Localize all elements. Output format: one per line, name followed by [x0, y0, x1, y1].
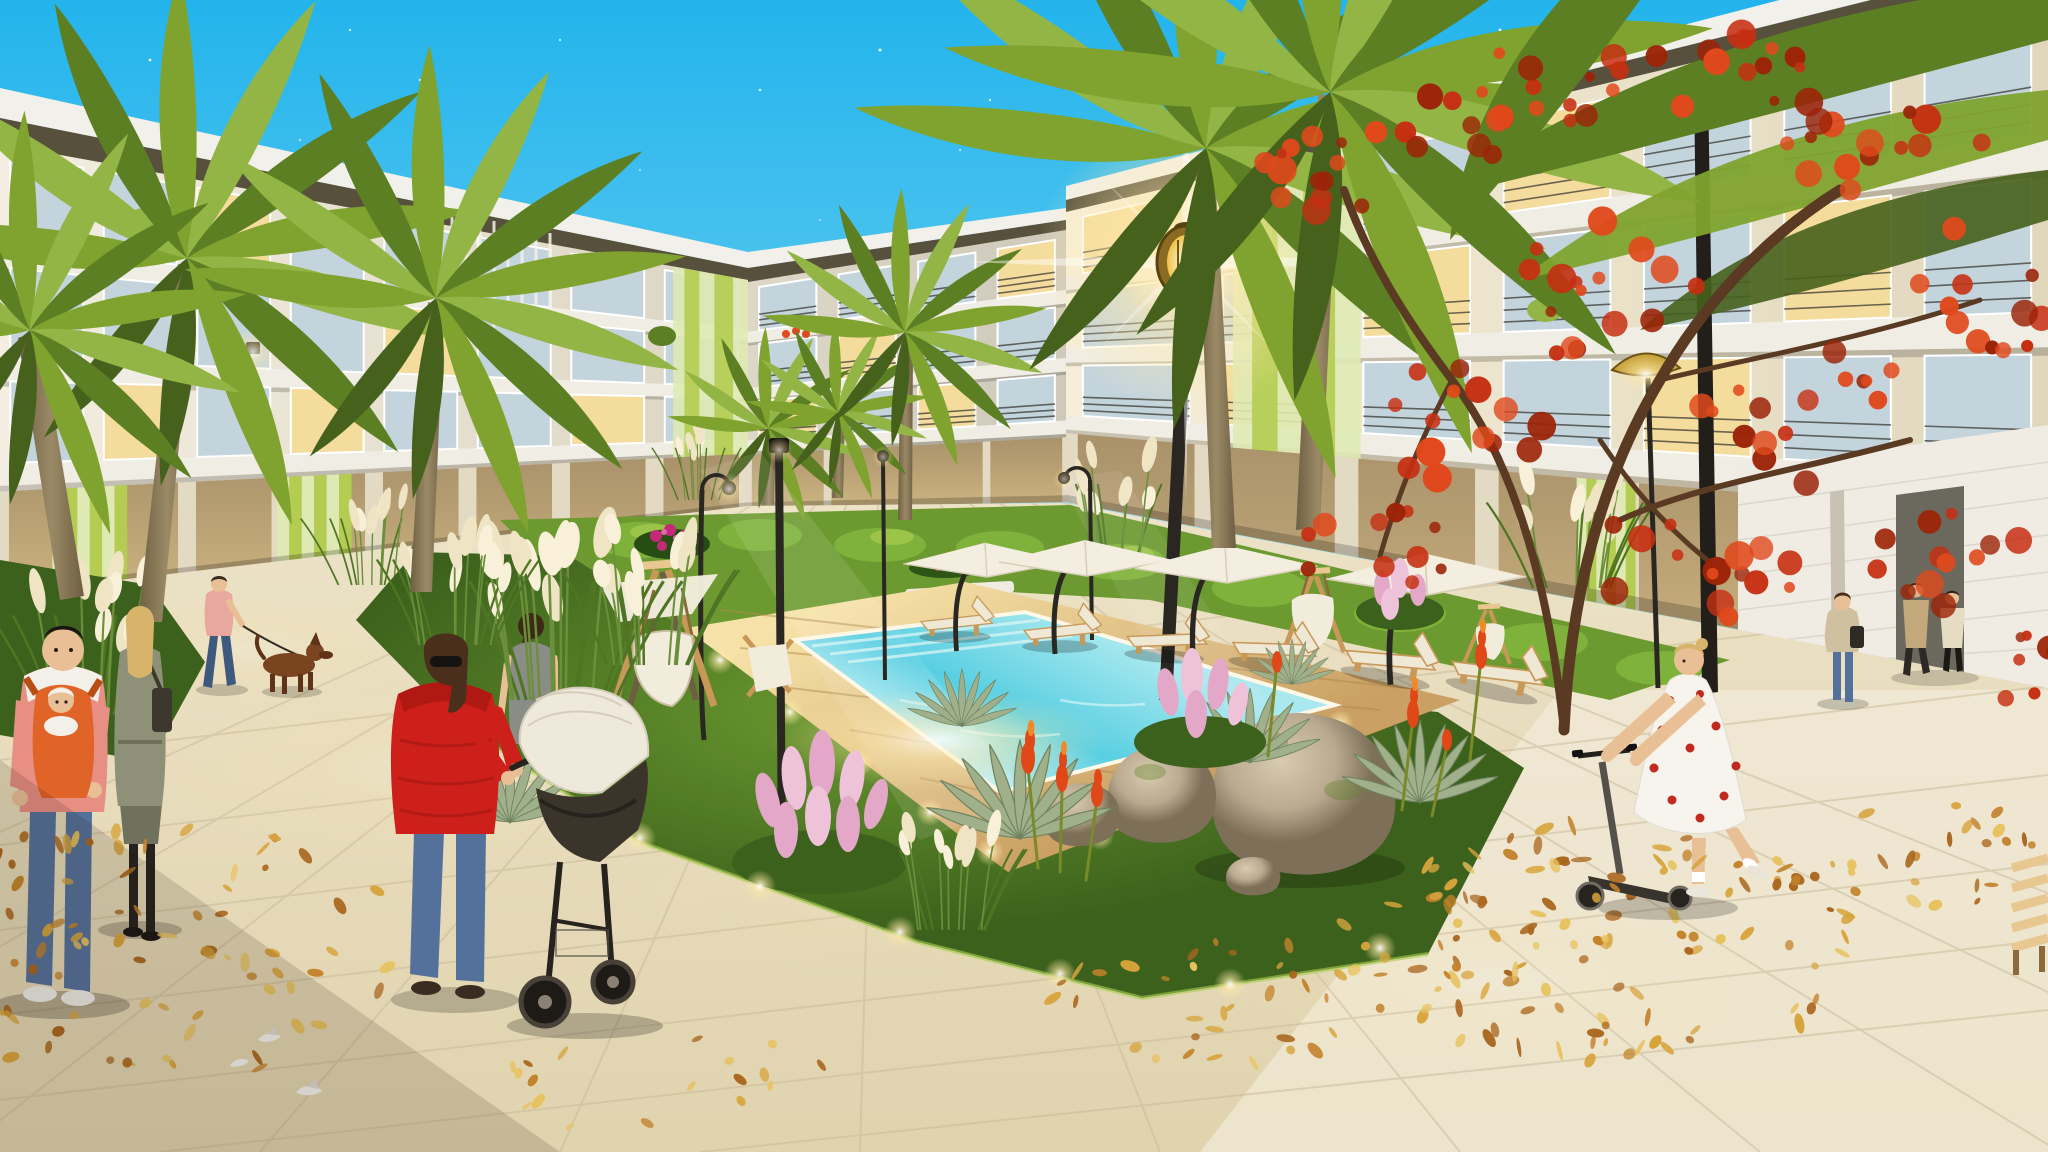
- architectural-rendering: [0, 0, 2048, 1152]
